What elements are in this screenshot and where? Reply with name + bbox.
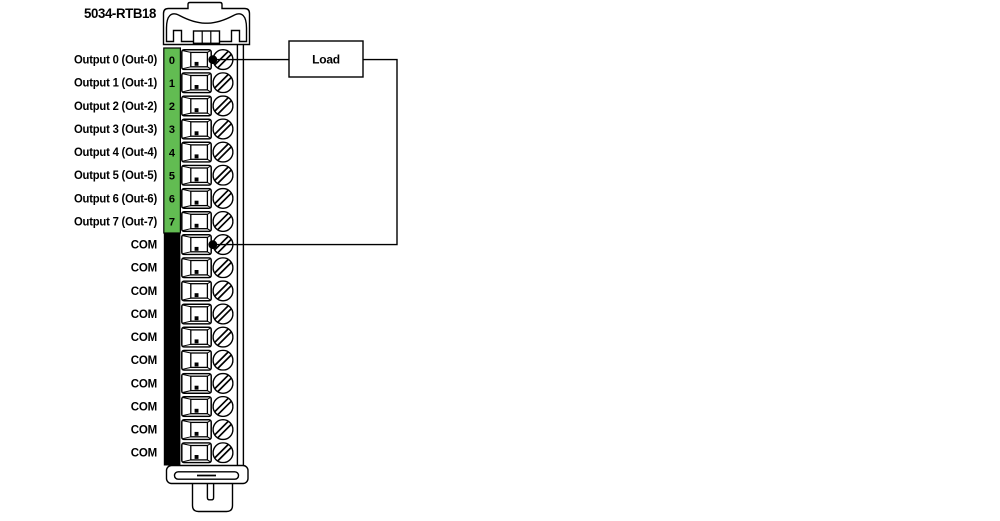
top-latch-comb <box>194 31 220 43</box>
terminal-number: 8 <box>169 240 175 252</box>
terminal-label: Output 6 (Out-6) <box>74 193 157 205</box>
screw-icon <box>213 327 233 347</box>
wires <box>213 60 397 245</box>
terminal-number: 5 <box>169 170 175 182</box>
terminal-number: 15 <box>166 402 178 414</box>
terminal-label: Output 1 (Out-1) <box>74 78 157 90</box>
wire-clamp-icon <box>182 73 211 93</box>
screw-icon <box>213 119 233 139</box>
terminal-row-9: COM9 <box>131 258 233 278</box>
wire-clamp-icon <box>182 420 211 440</box>
terminal-number: 3 <box>169 124 175 136</box>
terminal-label: Output 4 (Out-4) <box>74 147 157 159</box>
terminal-label: COM <box>131 448 157 460</box>
terminal-row-0: Output 0 (Out-0)0 <box>74 50 233 70</box>
terminal-label: COM <box>131 355 157 367</box>
terminal-number: 17 <box>166 448 178 460</box>
terminal-number: 4 <box>169 147 176 159</box>
terminal-row-16: COM16 <box>131 420 233 440</box>
terminal-row-10: COM10 <box>131 281 233 301</box>
screw-icon <box>213 350 233 370</box>
wire-clamp-icon <box>182 374 211 394</box>
wire-clamp-icon <box>182 142 211 162</box>
screw-icon <box>213 258 233 278</box>
terminal-label: COM <box>131 332 157 344</box>
wire-clamp-icon <box>182 96 211 116</box>
screw-icon <box>213 281 233 301</box>
terminal-number: 13 <box>166 355 178 367</box>
terminal-number: 9 <box>169 263 175 275</box>
terminal-row-17: COM17 <box>131 443 233 463</box>
terminal-label: Output 0 (Out-0) <box>74 55 157 67</box>
terminal-rows: Output 0 (Out-0)0Output 1 (Out-1)1Output… <box>74 50 233 463</box>
terminal-number: 11 <box>166 309 178 321</box>
terminal-row-6: Output 6 (Out-6)6 <box>74 189 233 209</box>
screw-icon <box>213 73 233 93</box>
screw-icon <box>213 374 233 394</box>
terminal-label: Output 2 (Out-2) <box>74 101 157 113</box>
terminal-row-14: COM14 <box>131 374 233 394</box>
screw-icon <box>213 212 233 232</box>
wire-clamp-icon <box>182 212 211 232</box>
terminal-number: 10 <box>166 286 178 298</box>
wire-clamp-icon <box>182 443 211 463</box>
terminal-row-12: COM12 <box>131 327 233 347</box>
terminal-label: COM <box>131 309 157 321</box>
load-box: Load <box>289 41 363 77</box>
terminal-label: Output 7 (Out-7) <box>74 217 157 229</box>
terminal-row-4: Output 4 (Out-4)4 <box>74 142 233 162</box>
terminal-row-13: COM13 <box>131 350 233 370</box>
wire-clamp-icon <box>182 397 211 417</box>
terminal-row-5: Output 5 (Out-5)5 <box>74 165 233 185</box>
terminal-number: 12 <box>166 332 178 344</box>
terminal-row-2: Output 2 (Out-2)2 <box>74 96 233 116</box>
terminal-row-7: Output 7 (Out-7)7 <box>74 212 233 232</box>
screw-icon <box>213 142 233 162</box>
terminal-label: COM <box>131 263 157 275</box>
screw-icon <box>213 165 233 185</box>
terminal-number: 6 <box>169 194 175 206</box>
screw-icon <box>213 96 233 116</box>
terminal-row-15: COM15 <box>131 397 233 417</box>
screw-icon <box>213 304 233 324</box>
terminal-number: 0 <box>169 55 175 67</box>
terminal-row-1: Output 1 (Out-1)1 <box>74 73 233 93</box>
terminal-label: COM <box>131 286 157 298</box>
screw-icon <box>213 420 233 440</box>
terminal-label: COM <box>131 425 157 437</box>
wire-clamp-icon <box>182 165 211 185</box>
terminal-row-11: COM11 <box>131 304 233 324</box>
load-label: Load <box>312 53 340 67</box>
terminal-label: COM <box>131 240 157 252</box>
terminal-number: 2 <box>169 101 175 113</box>
wire-load-to-terminal8 <box>213 60 397 245</box>
wire-clamp-icon <box>182 50 211 70</box>
screw-icon <box>213 443 233 463</box>
terminal-label: Output 5 (Out-5) <box>74 170 157 182</box>
screw-icon <box>213 397 233 417</box>
module-title: 5034-RTB18 <box>84 6 157 21</box>
terminal-row-3: Output 3 (Out-3)3 <box>74 119 233 139</box>
wire-clamp-icon <box>182 350 211 370</box>
terminal-label: COM <box>131 402 157 414</box>
terminal-number: 14 <box>166 379 179 391</box>
diagram-canvas: 5034-RTB18 Output 0 (Out-0)0Output 1 (Ou… <box>0 0 1000 521</box>
wire-clamp-icon <box>182 235 211 255</box>
wire-clamp-icon <box>182 327 211 347</box>
terminal-number: 7 <box>169 217 175 229</box>
wire-clamp-icon <box>182 189 211 209</box>
terminal-number: 16 <box>166 425 178 437</box>
wire-clamp-icon <box>182 304 211 324</box>
terminal-label: Output 3 (Out-3) <box>74 124 157 136</box>
wire-clamp-icon <box>182 281 211 301</box>
wiring-diagram: 5034-RTB18 Output 0 (Out-0)0Output 1 (Ou… <box>0 0 1000 521</box>
bottom-tab-slot <box>207 484 213 500</box>
screw-icon <box>213 189 233 209</box>
wire-clamp-icon <box>182 119 211 139</box>
terminal-number: 1 <box>169 78 175 90</box>
terminal-label: COM <box>131 378 157 390</box>
wire-clamp-icon <box>182 258 211 278</box>
